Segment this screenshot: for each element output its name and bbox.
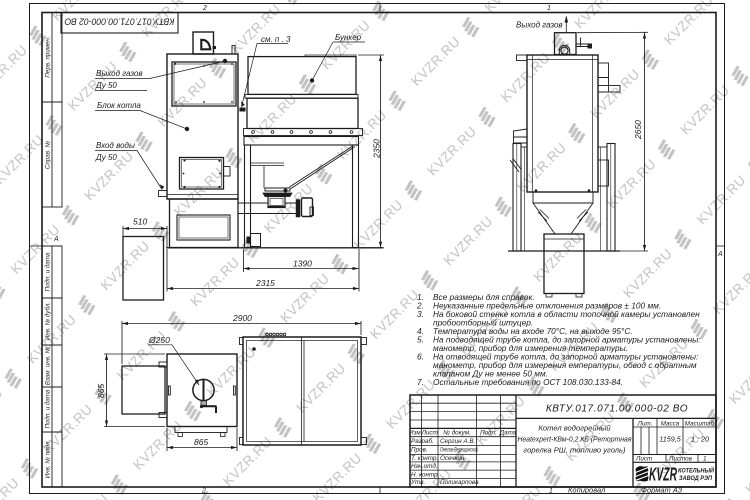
svg-text:Справ. №: Справ. № xyxy=(45,141,52,169)
svg-text:Котел водогрейный: Котел водогрейный xyxy=(538,424,611,433)
svg-text:1: 1 xyxy=(703,456,707,463)
svg-text:1390: 1390 xyxy=(293,259,312,269)
svg-text:Сергин А.В.: Сергин А.В. xyxy=(440,438,475,445)
svg-text:1: 1 xyxy=(549,488,553,495)
svg-text:KVZR: KVZR xyxy=(649,465,677,485)
svg-text:Разраб.: Разраб. xyxy=(411,437,434,445)
svg-text:Лист: Лист xyxy=(421,429,438,436)
svg-text:Взам. инв. №: Взам. инв. № xyxy=(45,347,52,386)
svg-text:Инв. № подл.: Инв. № подл. xyxy=(45,440,52,478)
svg-text:865: 865 xyxy=(194,437,208,447)
svg-text:2: 2 xyxy=(202,5,207,12)
svg-text:Масса: Масса xyxy=(661,420,680,427)
svg-text:КВТУ.017.071.00.000-02 ВО: КВТУ.017.071.00.000-02 ВО xyxy=(546,403,688,414)
svg-text:КОТЕЛЬНЫЙ: КОТЕЛЬНЫЙ xyxy=(678,466,714,475)
svg-text:Ду 50: Ду 50 xyxy=(95,81,117,90)
svg-text:горелка РШ, топливо уголь): горелка РШ, топливо уголь) xyxy=(523,446,626,455)
svg-text:Подп.: Подп. xyxy=(480,428,497,436)
svg-text:А: А xyxy=(717,251,723,258)
svg-text:2315: 2315 xyxy=(255,278,275,288)
svg-text:Масштаб: Масштаб xyxy=(685,419,715,427)
svg-text:см. п . 3: см. п . 3 xyxy=(261,35,291,44)
svg-text:7.: 7. xyxy=(417,377,424,387)
svg-text:510: 510 xyxy=(133,217,147,227)
svg-text:2350: 2350 xyxy=(372,139,382,159)
svg-text:Нач.отд.: Нач.отд. xyxy=(411,462,438,470)
svg-text:865: 865 xyxy=(96,384,106,398)
svg-text:2650: 2650 xyxy=(633,120,643,140)
svg-text:Выход газов: Выход газов xyxy=(516,21,563,30)
svg-text:№ докум.: № докум. xyxy=(443,428,471,436)
svg-text:Н. контр.: Н. контр. xyxy=(411,471,439,478)
svg-text:Поликарпова: Поликарпова xyxy=(440,479,479,486)
svg-text:3.: 3. xyxy=(417,309,424,319)
svg-text:Подп. и дата: Подп. и дата xyxy=(45,252,52,291)
svg-text:Ду 50: Ду 50 xyxy=(95,153,117,162)
svg-text:1: 1 xyxy=(547,5,551,12)
svg-text:2900: 2900 xyxy=(232,313,252,323)
svg-text:Т. контр.: Т. контр. xyxy=(411,455,438,462)
svg-text:6.: 6. xyxy=(417,352,424,362)
svg-text:Ø250: Ø250 xyxy=(148,335,170,345)
svg-text:Подп. и дата: Подп. и дата xyxy=(45,389,52,428)
svg-text:Лист: Лист xyxy=(635,456,652,463)
svg-text:Блок котла: Блок котла xyxy=(97,101,141,110)
svg-text:1159,5: 1159,5 xyxy=(659,435,681,444)
svg-text:Онегов-Верещинский: Онегов-Верещинский xyxy=(440,446,478,454)
svg-text:КВТУ.017.071.00.000-02 ВО: КВТУ.017.071.00.000-02 ВО xyxy=(65,17,175,27)
svg-text:Бункер: Бункер xyxy=(335,33,362,42)
svg-text:Выход газов: Выход газов xyxy=(96,69,143,78)
svg-text:ЗАВОД РЭП: ЗАВОД РЭП xyxy=(679,475,712,482)
svg-text:5.: 5. xyxy=(417,335,424,345)
svg-text:1 : 20: 1 : 20 xyxy=(691,435,709,444)
svg-text:Утв.: Утв. xyxy=(410,479,425,486)
svg-text:Heatexpert-КВм-0,2 КБ (Ретортн: Heatexpert-КВм-0,2 КБ (Ретортная xyxy=(518,435,632,444)
svg-text:Дата: Дата xyxy=(499,429,517,436)
svg-text:Лит.: Лит. xyxy=(637,420,653,427)
svg-text:А: А xyxy=(53,236,59,243)
svg-text:Пров.: Пров. xyxy=(411,447,428,454)
svg-text:Перв. примен.: Перв. примен. xyxy=(45,36,52,77)
svg-text:Листов: Листов xyxy=(668,456,693,463)
svg-text:2: 2 xyxy=(201,488,206,495)
svg-text:Остальные требования по ОСТ 10: Остальные требования по ОСТ 108.030.133-… xyxy=(433,377,623,387)
svg-text:Изм.: Изм. xyxy=(409,429,422,436)
svg-text:Инв. № дубл.: Инв. № дубл. xyxy=(45,302,52,340)
svg-text:Вход воды: Вход воды xyxy=(96,141,135,150)
svg-text:Осечкин: Осечкин xyxy=(440,455,465,462)
